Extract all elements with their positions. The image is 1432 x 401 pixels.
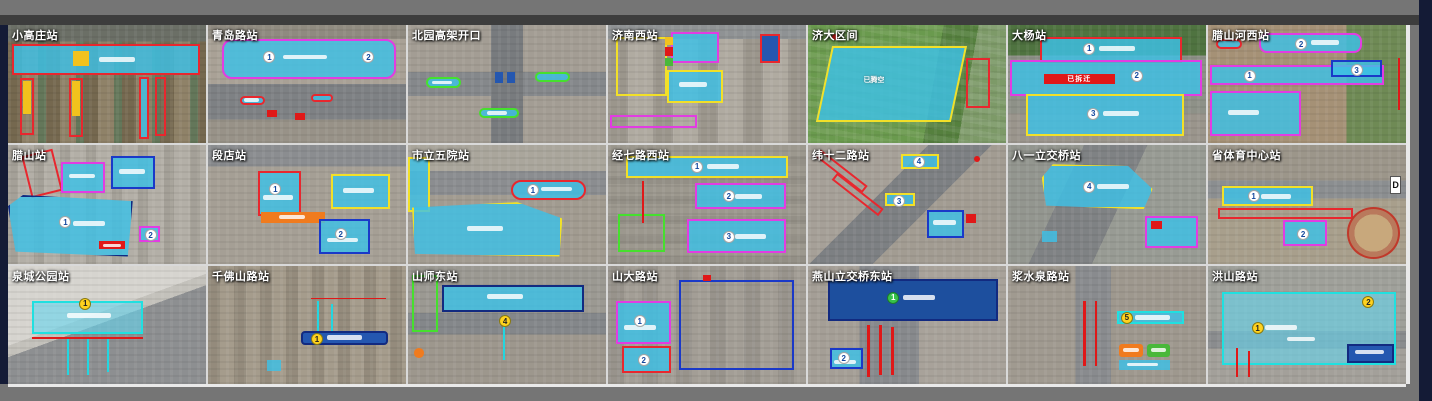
- construction-zone-overlay: [139, 77, 149, 139]
- map-tile[interactable]: 济大区间已腾空: [808, 25, 1006, 143]
- zone-caption-bar: [1135, 315, 1171, 319]
- zone-caption-bar: [1261, 194, 1291, 199]
- zone-caption-bar: [903, 295, 935, 300]
- zone-caption-bar: [73, 221, 105, 226]
- survey-line: [87, 339, 89, 375]
- survey-line: [317, 301, 319, 331]
- station-name-label: 青岛路站: [212, 27, 258, 43]
- construction-zone-overlay: [408, 157, 430, 211]
- status-banner: 已拆迁: [1044, 74, 1115, 85]
- construction-zone-overlay: [23, 81, 31, 114]
- construction-zone-overlay: [414, 348, 424, 357]
- zone-caption-bar: [679, 82, 707, 87]
- zone-number-marker: 3: [723, 231, 735, 243]
- map-tile[interactable]: 段店站12: [208, 145, 406, 263]
- zone-caption-bar: [1311, 40, 1339, 45]
- zone-caption-bar: [1355, 350, 1385, 354]
- construction-zone-overlay: [671, 32, 719, 63]
- zone-caption-bar: [343, 188, 375, 193]
- station-name-label: 经七路西站: [612, 147, 670, 163]
- map-tile[interactable]: 洪山路站12: [1208, 266, 1406, 384]
- zone-caption-bar: [487, 111, 507, 115]
- construction-zone-overlay: [879, 325, 881, 375]
- construction-zone-overlay: [760, 34, 780, 62]
- station-name-label: 段店站: [212, 147, 247, 163]
- zone-number-marker: 2: [335, 228, 347, 240]
- zone-number-marker: 4: [499, 315, 511, 327]
- zone-number-marker: 4: [1083, 181, 1095, 193]
- zone-number-marker: 5: [1121, 312, 1133, 324]
- bottom-seam: [8, 384, 1406, 387]
- road-sign-marker: D: [1390, 176, 1401, 194]
- construction-zone-overlay: [966, 58, 990, 108]
- construction-zone-overlay: [1042, 231, 1058, 243]
- construction-zone-overlay: [1398, 58, 1400, 110]
- zone-number-marker: 1: [1252, 322, 1264, 334]
- map-tile[interactable]: 泉城公园站1: [8, 266, 206, 384]
- station-name-label: 泉城公园站: [12, 268, 70, 284]
- map-tile[interactable]: 北园高架开口: [408, 25, 606, 143]
- survey-line: [107, 339, 109, 372]
- zone-caption-bar: [1127, 363, 1159, 367]
- zone-number-marker: 1: [1248, 190, 1260, 202]
- station-name-label: 省体育中心站: [1212, 147, 1281, 163]
- construction-zone-overlay: [267, 110, 277, 117]
- map-tile[interactable]: 山大路站12: [608, 266, 806, 384]
- survey-line: [67, 339, 69, 375]
- map-tile[interactable]: 八一立交桥站4: [1008, 145, 1206, 263]
- construction-zone-overlay: [155, 77, 167, 136]
- construction-zone-overlay: [642, 181, 644, 224]
- station-name-label: 北园高架开口: [412, 27, 481, 43]
- zone-caption-bar: [1265, 325, 1297, 330]
- station-name-label: 八一立交桥站: [1012, 147, 1081, 163]
- zone-caption-bar: [69, 174, 95, 179]
- zone-number-marker: 1: [311, 333, 323, 345]
- zone-caption-bar: [1097, 184, 1129, 189]
- construction-zone-overlay: [72, 81, 80, 116]
- map-tile[interactable]: 浆水泉路站5: [1008, 266, 1206, 384]
- map-tile[interactable]: 纬十二路站43: [808, 145, 1006, 263]
- zone-caption-bar: [1099, 46, 1135, 51]
- zone-caption-bar: [735, 194, 763, 199]
- station-name-label: 山大路站: [612, 268, 658, 284]
- construction-zone-overlay: [1236, 348, 1238, 376]
- zone-number-marker: 1: [887, 292, 899, 304]
- zone-caption-bar: [1123, 348, 1139, 352]
- station-name-label: 纬十二路站: [812, 147, 870, 163]
- zone-caption-bar: [933, 220, 957, 225]
- construction-zone-overlay: [679, 280, 794, 370]
- zone-number-marker: 4: [913, 156, 925, 168]
- zone-caption-bar: [487, 294, 523, 299]
- zone-caption-bar: [103, 244, 121, 248]
- zone-caption-bar: [1287, 337, 1315, 341]
- map-tile[interactable]: 大杨站12已拆迁3: [1008, 25, 1206, 143]
- construction-zone-overlay: [535, 72, 571, 81]
- station-name-label: 山师东站: [412, 268, 458, 284]
- construction-zone-overlay: [311, 298, 386, 300]
- zone-caption-bar: [707, 164, 739, 169]
- zone-caption-bar: [432, 81, 452, 85]
- station-name-label: 燕山立交桥东站: [812, 268, 893, 284]
- zone-caption-bar: [263, 195, 293, 200]
- construction-zone-overlay: [665, 58, 673, 66]
- construction-zone-overlay: [1248, 351, 1250, 377]
- map-tile[interactable]: 山师东站4: [408, 266, 606, 384]
- zone-caption-bar: [279, 215, 305, 219]
- map-tile[interactable]: 省体育中心站12D: [1208, 145, 1406, 263]
- construction-zone-overlay: [891, 327, 893, 374]
- construction-zone-overlay: [610, 115, 697, 128]
- station-name-label: 市立五院站: [412, 147, 470, 163]
- zone-caption-bar: [735, 234, 767, 239]
- map-tile[interactable]: 千佛山路站1: [208, 266, 406, 384]
- station-name-label: 大杨站: [1012, 27, 1047, 43]
- zone-caption-bar: [244, 98, 260, 102]
- map-tile[interactable]: 腊山站12: [8, 145, 206, 263]
- zone-number-marker: 3: [1087, 108, 1099, 120]
- status-text: 已腾空: [863, 75, 884, 85]
- station-name-label: 腊山河西站: [1212, 27, 1270, 43]
- station-name-label: 济南西站: [612, 27, 658, 43]
- construction-zone-overlay: [665, 47, 673, 55]
- right-frame-bar: [1419, 0, 1432, 401]
- zone-number-marker: 1: [1244, 70, 1256, 82]
- survey-line: [331, 304, 333, 331]
- zone-caption-bar: [1228, 110, 1260, 115]
- zone-number-marker: 2: [145, 229, 157, 241]
- station-map-collage: 小高庄站青岛路站12北园高架开口济南西站济大区间已腾空大杨站12已拆迁3腊山河西…: [0, 0, 1432, 401]
- zone-number-marker: 1: [79, 298, 91, 310]
- map-tile[interactable]: 青岛路站12: [208, 25, 406, 143]
- map-tile[interactable]: 经七路西站123: [608, 145, 806, 263]
- map-tile[interactable]: 济南西站: [608, 25, 806, 143]
- construction-zone-overlay: [974, 156, 980, 162]
- station-name-label: 洪山路站: [1212, 268, 1258, 284]
- map-tile[interactable]: 燕山立交桥东站12: [808, 266, 1006, 384]
- construction-zone-overlay: [667, 70, 722, 103]
- construction-zone-overlay: [816, 46, 967, 122]
- construction-zone-overlay: [1095, 301, 1097, 366]
- zone-number-marker: 1: [691, 161, 703, 173]
- construction-zone-overlay: [665, 37, 673, 45]
- station-name-label: 千佛山路站: [212, 268, 270, 284]
- construction-zone-overlay: [258, 171, 302, 216]
- construction-zone-overlay: [1218, 208, 1353, 219]
- zone-caption-bar: [67, 313, 111, 318]
- station-name-label: 小高庄站: [12, 27, 58, 43]
- map-tile[interactable]: 腊山河西站213: [1208, 25, 1406, 143]
- construction-zone-overlay: [966, 214, 976, 223]
- construction-zone-overlay: [1083, 301, 1085, 366]
- construction-zone-overlay: [295, 113, 305, 120]
- zone-number-marker: 2: [1131, 70, 1143, 82]
- zone-caption-bar: [541, 187, 573, 192]
- zone-caption-bar: [327, 335, 363, 340]
- construction-zone-overlay: [311, 94, 333, 102]
- stadium-landmark: [1347, 207, 1400, 259]
- construction-zone-overlay: [828, 279, 998, 322]
- zone-caption-bar: [119, 169, 145, 174]
- station-name-label: 济大区间: [812, 27, 858, 43]
- map-tile[interactable]: 小高庄站: [8, 25, 206, 143]
- station-name-label: 浆水泉路站: [1012, 268, 1070, 284]
- station-name-label: 腊山站: [12, 147, 47, 163]
- zone-number-marker: 3: [1351, 64, 1363, 76]
- construction-zone-overlay: [1151, 221, 1163, 229]
- construction-zone-overlay: [867, 325, 869, 377]
- map-tile-grid: 小高庄站青岛路站12北园高架开口济南西站济大区间已腾空大杨站12已拆迁3腊山河西…: [8, 25, 1406, 384]
- zone-caption-bar: [283, 55, 327, 60]
- construction-zone-overlay: [703, 275, 711, 281]
- construction-zone-overlay: [616, 37, 667, 96]
- left-frame-bar: [0, 25, 8, 384]
- right-seam: [1406, 25, 1410, 384]
- zone-caption-bar: [1151, 348, 1167, 352]
- top-divider-band: [0, 15, 1420, 25]
- construction-zone-overlay: [267, 360, 281, 371]
- zone-caption-bar: [99, 57, 135, 62]
- map-tile[interactable]: 市立五院站1: [408, 145, 606, 263]
- zone-caption-bar: [1103, 111, 1139, 116]
- construction-zone-overlay: [495, 72, 503, 83]
- construction-zone-overlay: [507, 72, 515, 83]
- construction-zone-overlay: [73, 51, 89, 66]
- zone-number-marker: 1: [1083, 43, 1095, 55]
- zone-caption-bar: [467, 226, 503, 231]
- zone-number-marker: 2: [838, 352, 850, 364]
